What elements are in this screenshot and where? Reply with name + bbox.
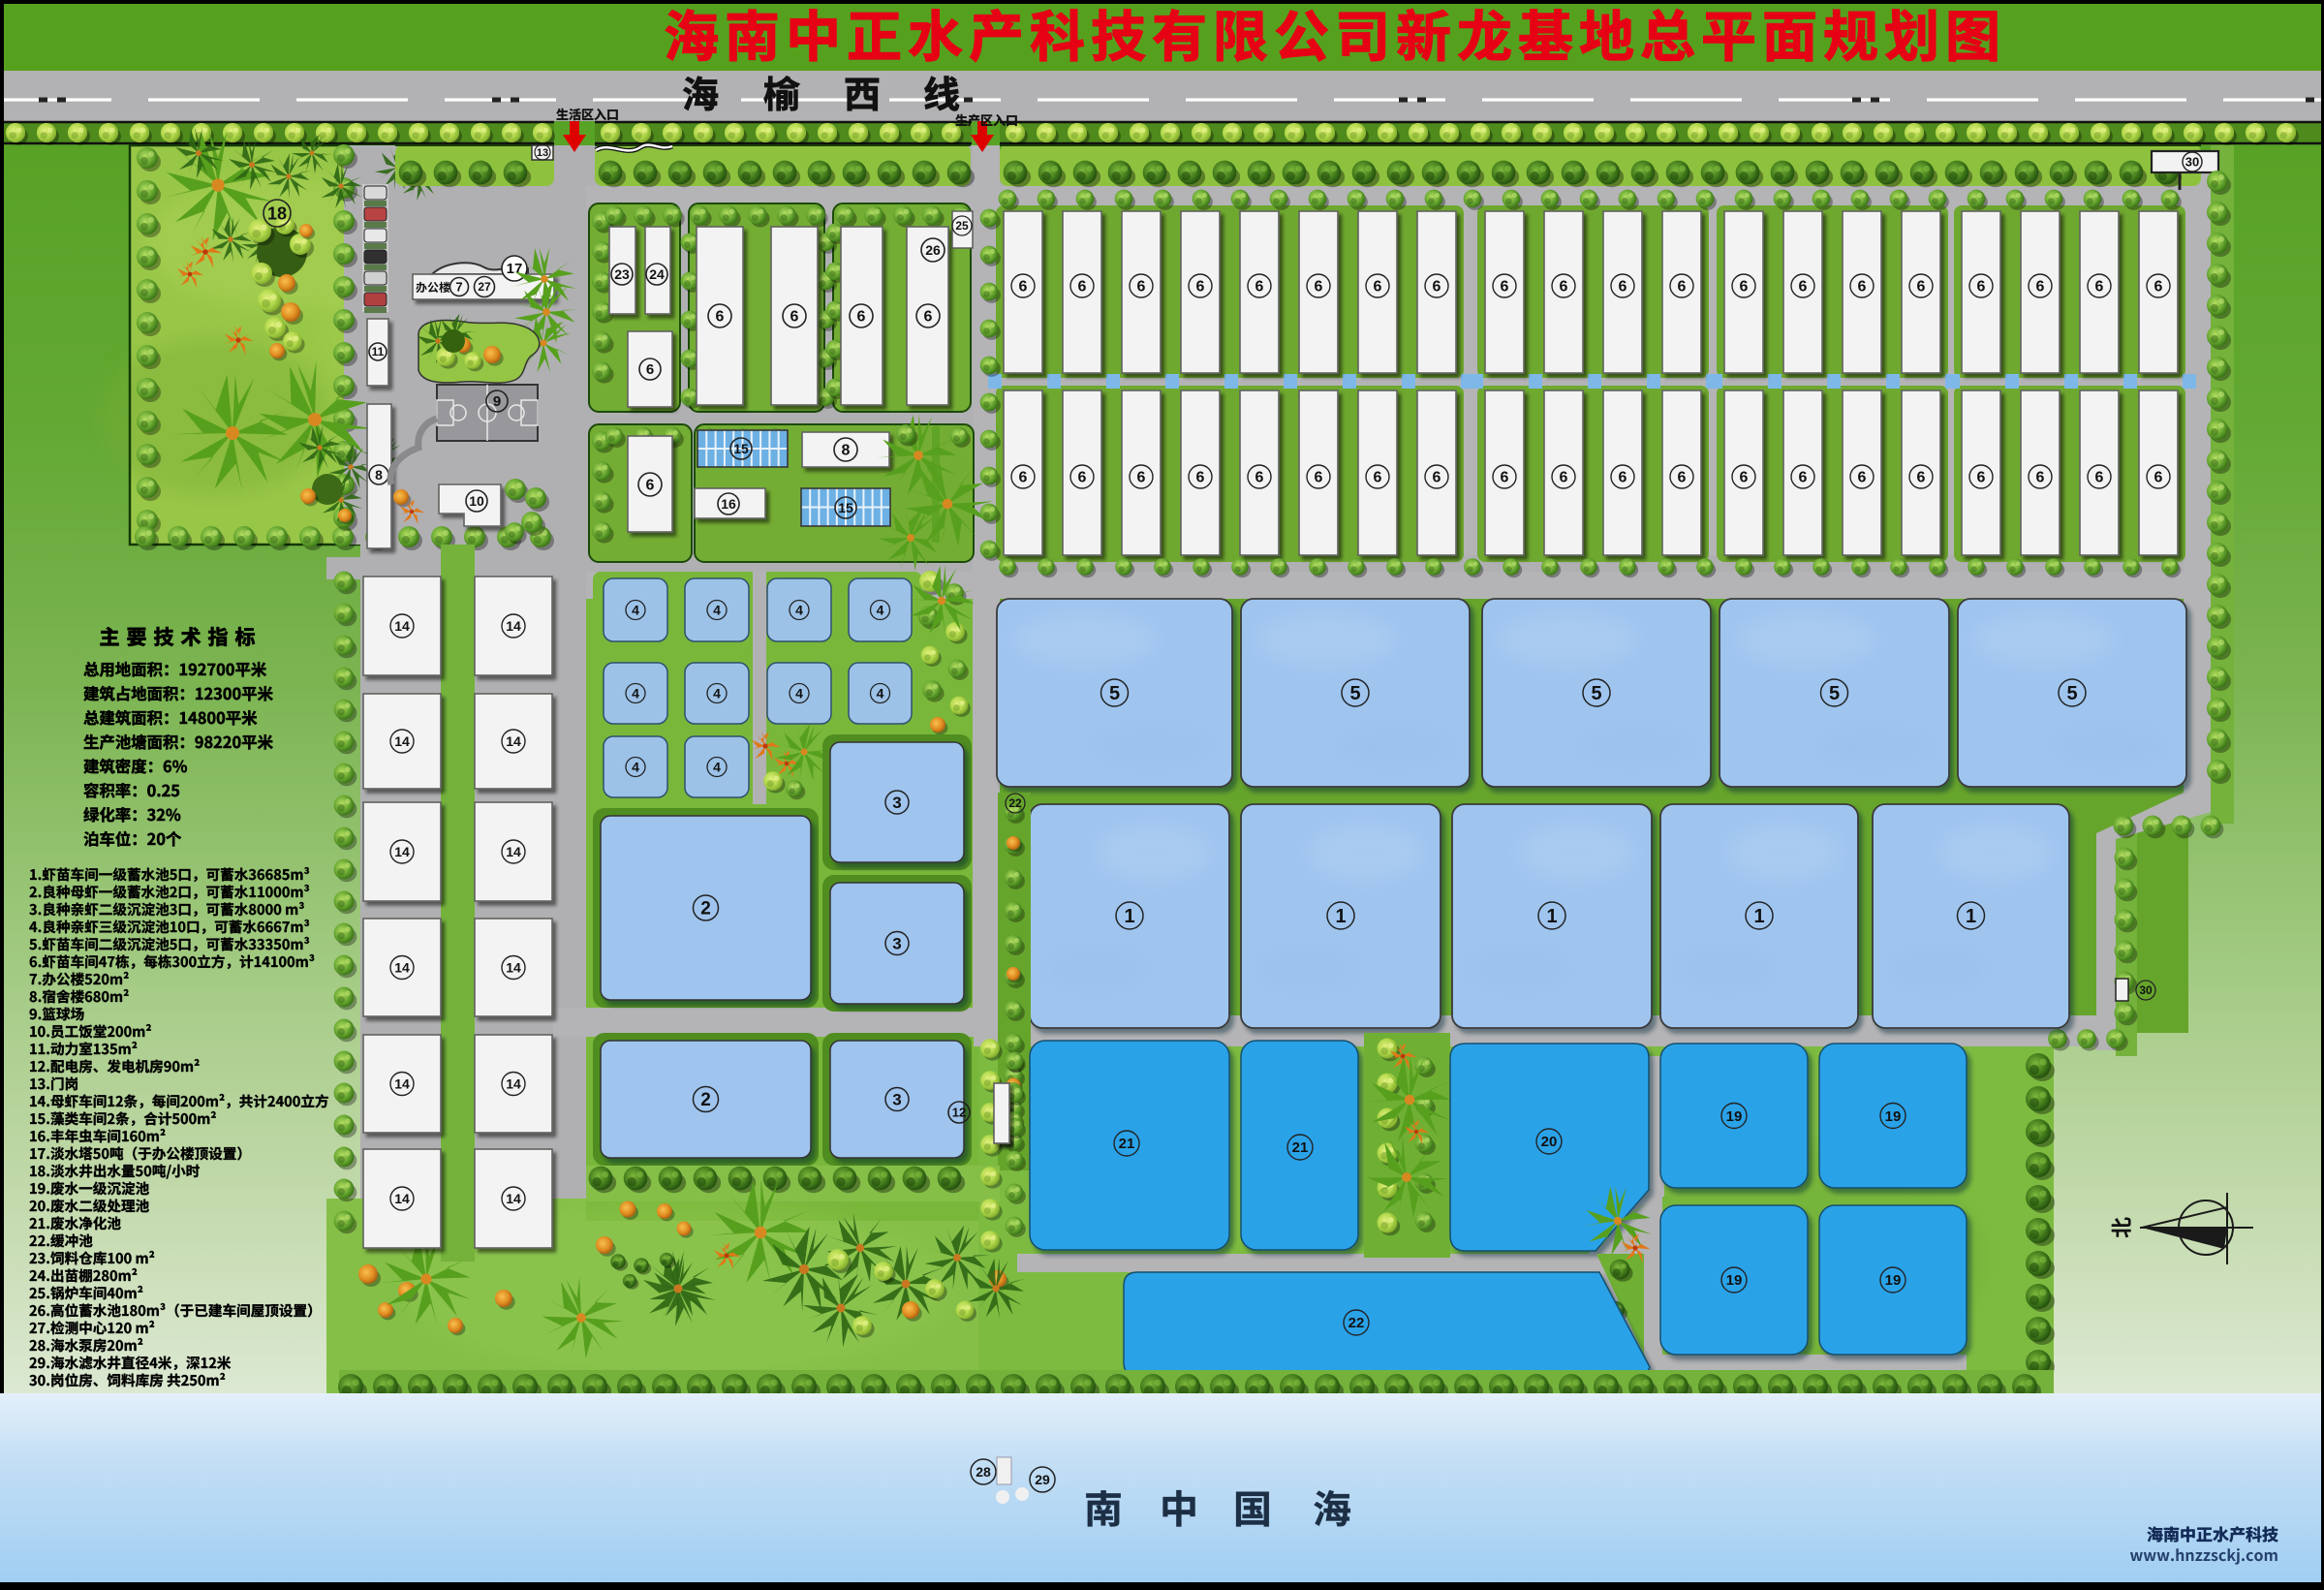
svg-text:14: 14 [506, 1191, 521, 1206]
svg-text:15: 15 [733, 441, 749, 456]
svg-text:6: 6 [646, 361, 654, 378]
svg-text:2: 2 [700, 899, 711, 920]
svg-text:23: 23 [614, 266, 630, 282]
svg-text:6: 6 [1196, 279, 1205, 296]
svg-text:6: 6 [1137, 279, 1146, 296]
svg-text:6: 6 [1019, 279, 1028, 296]
svg-text:3: 3 [892, 794, 901, 812]
svg-text:6: 6 [857, 309, 866, 326]
svg-text:6: 6 [1560, 279, 1568, 296]
svg-text:4: 4 [632, 685, 639, 701]
svg-text:15: 15 [838, 500, 853, 515]
svg-text:14: 14 [506, 959, 521, 975]
svg-text:4: 4 [713, 602, 721, 617]
svg-text:1: 1 [1966, 906, 1976, 927]
svg-text:4: 4 [795, 685, 803, 701]
svg-text:6: 6 [1858, 470, 1867, 486]
svg-text:8: 8 [375, 467, 383, 483]
svg-text:6: 6 [2154, 470, 2163, 486]
svg-text:3: 3 [892, 935, 901, 953]
svg-text:6: 6 [1501, 470, 1509, 486]
svg-text:5: 5 [2066, 683, 2077, 704]
svg-text:28: 28 [976, 1464, 991, 1480]
svg-text:6: 6 [1619, 470, 1627, 486]
svg-text:6: 6 [1917, 279, 1926, 296]
svg-text:6: 6 [1374, 279, 1382, 296]
svg-text:6: 6 [1619, 279, 1627, 296]
svg-text:21: 21 [1119, 1136, 1135, 1152]
svg-text:6: 6 [2095, 470, 2104, 486]
svg-text:19: 19 [1726, 1272, 1743, 1289]
svg-text:14: 14 [394, 1191, 410, 1206]
svg-text:6: 6 [1977, 470, 1986, 486]
svg-text:1: 1 [1124, 906, 1134, 927]
svg-text:19: 19 [1885, 1108, 1902, 1125]
svg-text:27: 27 [478, 280, 491, 294]
svg-text:4: 4 [632, 602, 639, 617]
svg-text:6: 6 [1433, 279, 1441, 296]
svg-text:6: 6 [1977, 279, 1986, 296]
svg-text:14: 14 [394, 733, 410, 749]
svg-text:6: 6 [1196, 470, 1205, 486]
svg-text:4: 4 [632, 759, 639, 774]
svg-text:14: 14 [506, 1076, 521, 1091]
svg-text:14: 14 [506, 618, 521, 634]
svg-text:6: 6 [1799, 279, 1808, 296]
svg-text:6: 6 [790, 309, 799, 326]
svg-text:24: 24 [649, 266, 665, 282]
svg-text:3: 3 [892, 1091, 901, 1109]
svg-text:6: 6 [1740, 470, 1749, 486]
svg-text:14: 14 [394, 618, 410, 634]
svg-text:6: 6 [1858, 279, 1867, 296]
svg-text:7: 7 [455, 280, 462, 295]
svg-text:6: 6 [924, 309, 933, 326]
svg-text:1: 1 [1546, 906, 1557, 927]
svg-text:6: 6 [1799, 470, 1808, 486]
svg-text:9: 9 [493, 393, 501, 410]
svg-text:14: 14 [506, 844, 521, 859]
svg-text:16: 16 [721, 496, 736, 512]
svg-text:6: 6 [1255, 470, 1264, 486]
svg-text:5: 5 [1591, 683, 1601, 704]
svg-text:6: 6 [1501, 279, 1509, 296]
svg-text:25: 25 [955, 219, 969, 233]
svg-text:22: 22 [1008, 796, 1022, 810]
svg-text:6: 6 [2154, 279, 2163, 296]
svg-text:6: 6 [1560, 470, 1568, 486]
svg-text:6: 6 [646, 478, 655, 494]
svg-text:30: 30 [2139, 983, 2153, 997]
svg-text:4: 4 [713, 685, 721, 701]
svg-text:6: 6 [1019, 470, 1028, 486]
svg-text:14: 14 [394, 1076, 410, 1091]
svg-text:13: 13 [537, 147, 548, 159]
svg-text:6: 6 [1678, 470, 1687, 486]
svg-text:8: 8 [842, 443, 851, 459]
svg-text:5: 5 [1349, 683, 1360, 704]
svg-text:1: 1 [1335, 906, 1346, 927]
svg-text:19: 19 [1885, 1272, 1902, 1289]
svg-text:6: 6 [1678, 279, 1687, 296]
svg-text:11: 11 [372, 345, 385, 359]
svg-text:6: 6 [716, 309, 725, 326]
svg-text:6: 6 [1917, 470, 1926, 486]
svg-text:4: 4 [877, 602, 884, 617]
svg-text:21: 21 [1292, 1139, 1309, 1156]
svg-text:1: 1 [1753, 906, 1764, 927]
svg-text:6: 6 [2036, 279, 2045, 296]
svg-text:6: 6 [1315, 279, 1323, 296]
svg-text:14: 14 [394, 844, 410, 859]
svg-text:5: 5 [1829, 683, 1840, 704]
svg-text:6: 6 [1078, 470, 1087, 486]
svg-text:6: 6 [2095, 279, 2104, 296]
svg-text:6: 6 [1078, 279, 1087, 296]
svg-text:26: 26 [925, 242, 941, 258]
svg-text:6: 6 [2036, 470, 2045, 486]
svg-text:12: 12 [952, 1106, 966, 1120]
svg-text:10: 10 [469, 493, 484, 509]
svg-text:6: 6 [1255, 279, 1264, 296]
svg-text:6: 6 [1433, 470, 1441, 486]
svg-text:6: 6 [1740, 279, 1749, 296]
svg-text:5: 5 [1109, 683, 1120, 704]
svg-text:14: 14 [394, 959, 410, 975]
svg-text:6: 6 [1137, 470, 1146, 486]
svg-text:20: 20 [1541, 1134, 1558, 1150]
svg-text:18: 18 [267, 203, 287, 223]
svg-text:30: 30 [2185, 155, 2199, 170]
svg-text:2: 2 [700, 1090, 711, 1110]
svg-text:14: 14 [506, 733, 521, 749]
svg-text:6: 6 [1374, 470, 1382, 486]
svg-text:6: 6 [1315, 470, 1323, 486]
svg-text:4: 4 [795, 602, 803, 617]
svg-text:22: 22 [1348, 1315, 1365, 1331]
svg-text:29: 29 [1035, 1472, 1050, 1487]
svg-text:19: 19 [1726, 1108, 1743, 1125]
svg-text:4: 4 [877, 685, 884, 701]
svg-text:4: 4 [713, 759, 721, 774]
